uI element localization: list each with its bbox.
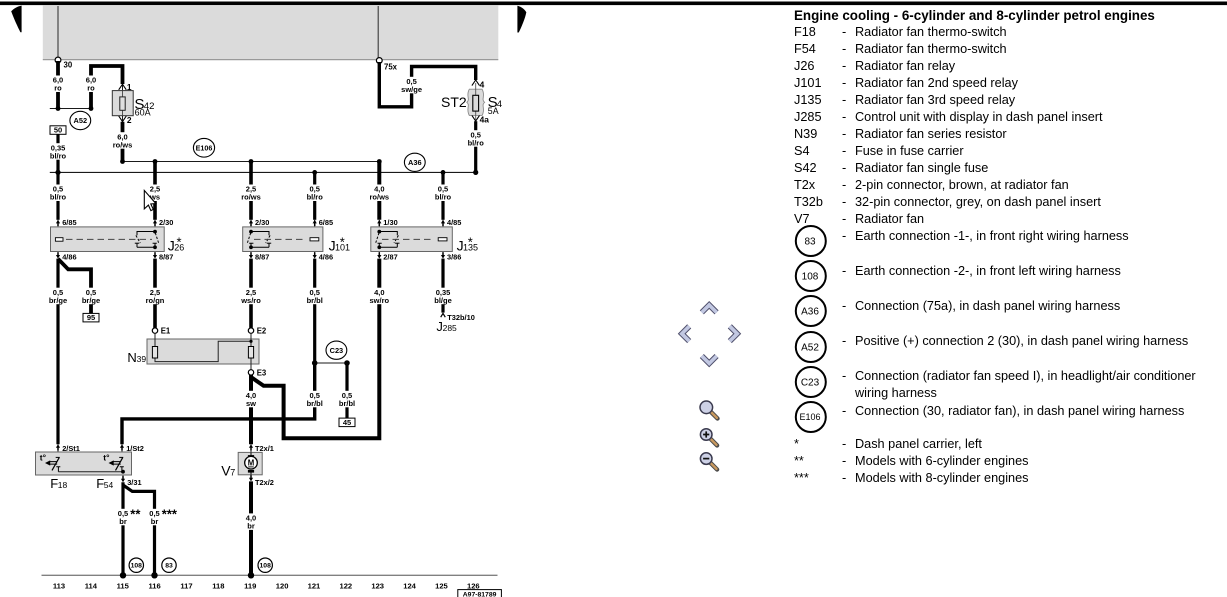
svg-text:ws/ro: ws/ro	[240, 296, 261, 305]
svg-text:115: 115	[117, 582, 130, 591]
svg-text:39: 39	[137, 354, 147, 364]
svg-text:3/86: 3/86	[447, 253, 461, 262]
svg-text:108: 108	[802, 272, 819, 283]
svg-text:E3: E3	[257, 369, 267, 378]
svg-text:br/ge: br/ge	[82, 296, 100, 305]
svg-text:*: *	[177, 235, 182, 250]
svg-text:M: M	[248, 458, 255, 467]
svg-text:A36: A36	[801, 307, 819, 318]
svg-text:2/87: 2/87	[383, 253, 397, 262]
svg-text:sw/ro: sw/ro	[370, 296, 390, 305]
svg-text:113: 113	[53, 582, 65, 591]
svg-text:*: *	[468, 235, 473, 250]
svg-text:3/31: 3/31	[127, 478, 141, 487]
svg-text:4/86: 4/86	[319, 253, 333, 262]
svg-text:br/bl: br/bl	[307, 399, 323, 408]
svg-text:120: 120	[276, 582, 289, 591]
svg-text:T32b/10: T32b/10	[447, 313, 475, 322]
svg-text:124: 124	[403, 582, 416, 591]
svg-text:119: 119	[244, 582, 256, 591]
svg-text:br: br	[247, 522, 255, 531]
svg-text:***: ***	[162, 506, 178, 521]
svg-text:t°: t°	[103, 453, 110, 463]
svg-text:2/St1: 2/St1	[62, 444, 80, 453]
svg-text:4/86: 4/86	[62, 253, 76, 262]
svg-text:C23: C23	[330, 346, 344, 355]
svg-text:T2x/2: T2x/2	[255, 478, 274, 487]
svg-text:br: br	[151, 517, 159, 526]
svg-text:T2x/1: T2x/1	[255, 444, 274, 453]
svg-text:8/87: 8/87	[255, 253, 269, 262]
svg-text:br: br	[119, 517, 127, 526]
svg-text:*: *	[340, 235, 345, 250]
svg-text:br/bl: br/bl	[339, 399, 355, 408]
svg-text:sw: sw	[246, 399, 256, 408]
svg-text:br/bl: br/bl	[307, 296, 323, 305]
svg-text:121: 121	[308, 582, 321, 591]
svg-text:122: 122	[339, 582, 352, 591]
svg-text:116: 116	[148, 582, 160, 591]
svg-text:N: N	[127, 350, 136, 365]
svg-text:bl/ge: bl/ge	[434, 296, 452, 305]
svg-text:t°: t°	[40, 453, 47, 463]
svg-text:83: 83	[804, 237, 816, 248]
svg-text:95: 95	[87, 313, 95, 322]
svg-text:118: 118	[212, 582, 224, 591]
svg-text:E106: E106	[799, 412, 820, 422]
svg-text:E2: E2	[257, 327, 267, 336]
svg-text:285: 285	[443, 323, 457, 333]
svg-text:E1: E1	[161, 327, 171, 336]
svg-text:br/ge: br/ge	[49, 296, 67, 305]
svg-text:A52: A52	[801, 342, 819, 353]
svg-text:83: 83	[165, 563, 173, 570]
svg-text:117: 117	[180, 582, 192, 591]
svg-text:45: 45	[343, 418, 351, 427]
svg-text:125: 125	[435, 582, 448, 591]
svg-text:114: 114	[85, 582, 98, 591]
svg-text:C23: C23	[801, 377, 820, 388]
svg-text:ro/gn: ro/gn	[146, 296, 165, 305]
svg-text:108: 108	[131, 563, 143, 570]
svg-text:108: 108	[260, 563, 272, 570]
svg-text:1/St2: 1/St2	[126, 444, 144, 453]
svg-text:18: 18	[58, 480, 68, 490]
svg-text:**: **	[130, 506, 141, 521]
svg-text:8/87: 8/87	[159, 253, 173, 262]
svg-text:A97-81789: A97-81789	[463, 592, 497, 597]
svg-text:7: 7	[230, 467, 235, 477]
svg-text:54: 54	[104, 480, 114, 490]
svg-text:123: 123	[371, 582, 384, 591]
